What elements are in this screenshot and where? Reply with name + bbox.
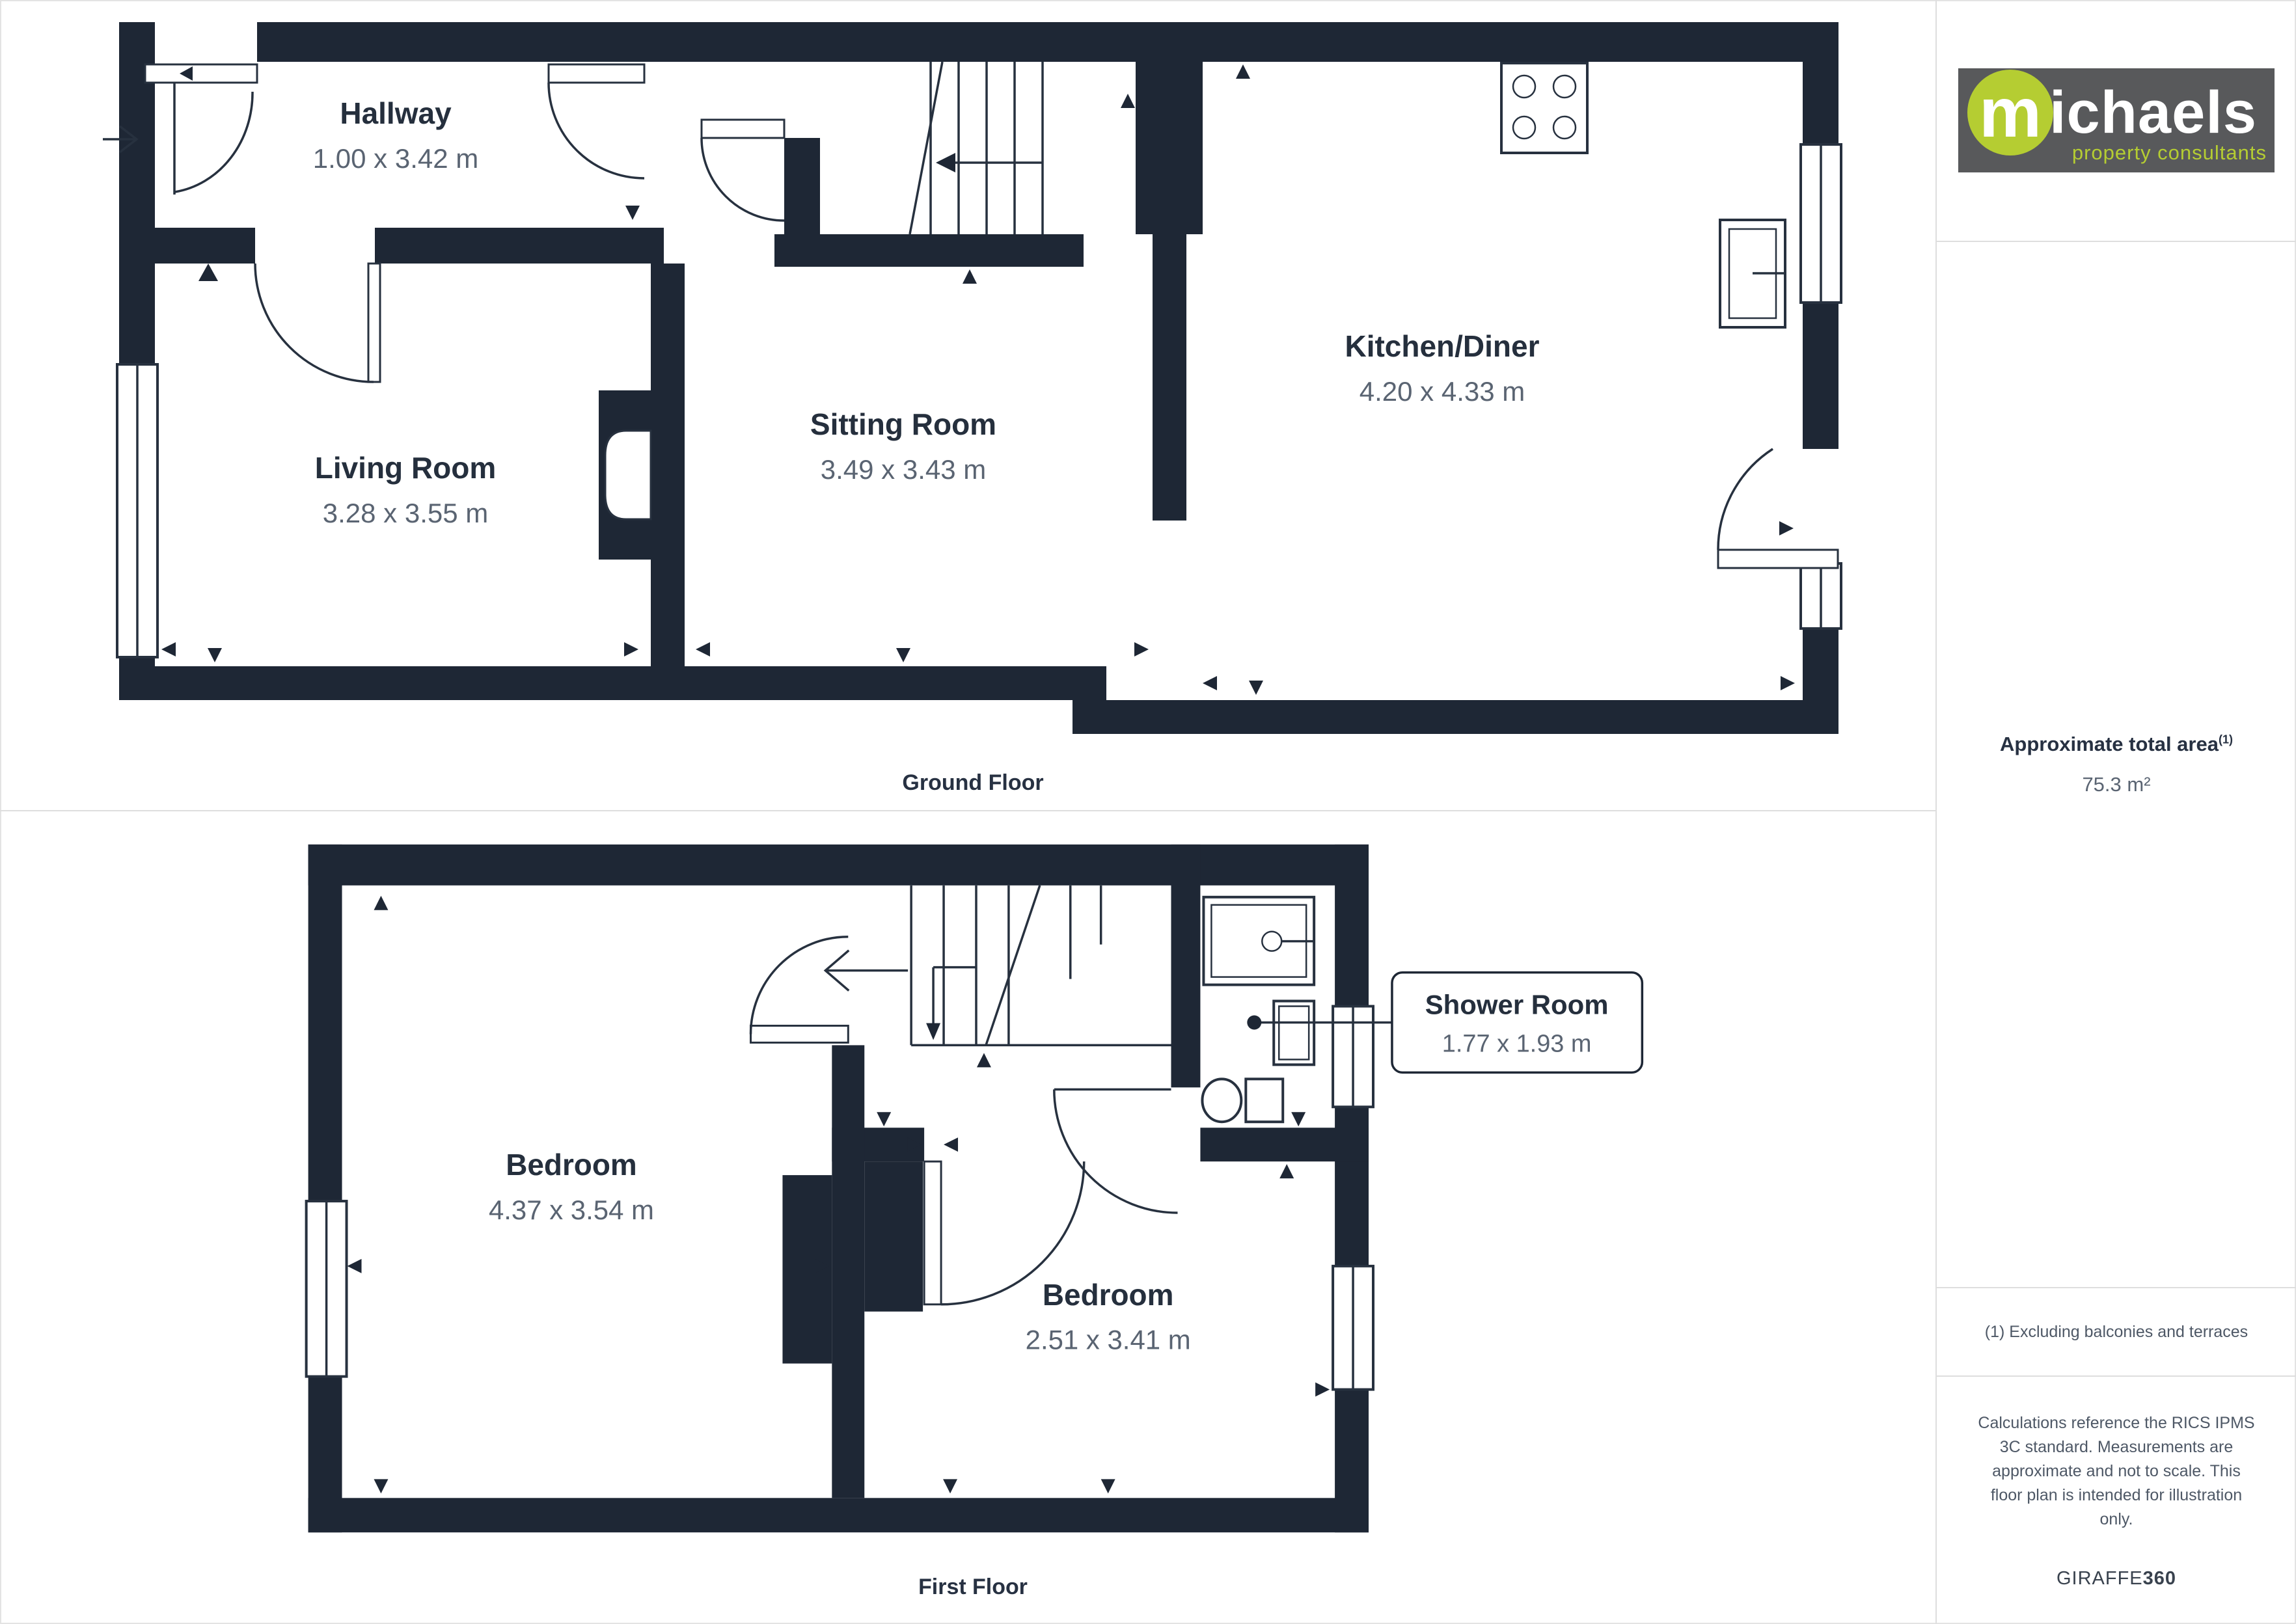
stove-icon (1501, 63, 1587, 153)
michaels-logo: m ichaels property consultants (1958, 68, 2275, 172)
room-label-sitting-room: Sitting Room (810, 407, 996, 441)
sitting-room-door (702, 120, 784, 221)
room-label-bedroom1: Bedroom (506, 1148, 637, 1182)
room-dims-sitting-room: 3.49 x 3.43 m (821, 454, 986, 485)
room-label-bedroom2: Bedroom (1043, 1278, 1174, 1312)
room-dims-hallway: 1.00 x 3.42 m (313, 143, 478, 174)
logo-tagline: property consultants (2072, 141, 2267, 165)
room-dims-bedroom2: 2.51 x 3.41 m (1026, 1325, 1191, 1355)
room-label-shower-room: Shower Room (1425, 990, 1609, 1020)
ground-floor-label: Ground Floor (902, 770, 1043, 795)
shower-room-door (1054, 1089, 1178, 1213)
total-area-footnote-ref: (1) (2219, 733, 2233, 746)
total-area-section: Approximate total area(1) 75.3 m² (1937, 241, 2296, 1287)
bedroom1-door (751, 937, 909, 1043)
giraffe-text: GIRAFFE (2057, 1568, 2143, 1589)
first-floor-stairs (911, 886, 1171, 1046)
disclaimer-text: Calculations reference the RICS IPMS 3C … (1976, 1411, 2257, 1532)
living-room-door (255, 264, 380, 382)
room-dims-living-room: 3.28 x 3.55 m (323, 498, 488, 528)
logo-m-circle-icon: m (1967, 70, 2053, 156)
shower-tray-icon (1203, 897, 1314, 985)
first-floor-plan: Shower Room 1.77 x 1.93 m Bedroom 4.37 x… (0, 811, 1935, 1624)
first-floor-label: First Floor (918, 1575, 1028, 1599)
room-dims-bedroom1: 4.37 x 3.54 m (489, 1195, 654, 1225)
info-sidebar: m ichaels property consultants Approxima… (1935, 0, 2296, 1624)
total-area-title: Approximate total area(1) (2000, 733, 2233, 756)
total-area-label: Approximate total area (2000, 733, 2219, 755)
hallway-door (549, 64, 644, 178)
room-label-kitchen-diner: Kitchen/Diner (1345, 329, 1539, 363)
floorplan-page: Hallway 1.00 x 3.42 m Living Room 3.28 x… (0, 0, 2296, 1624)
room-label-living-room: Living Room (315, 451, 497, 485)
footnote-text: (1) Excluding balconies and terraces (1985, 1323, 2248, 1342)
ground-floor-windows (117, 144, 1841, 657)
logo-wordmark: ichaels (2049, 79, 2257, 147)
total-area-value: 75.3 m² (2082, 773, 2150, 796)
ground-floor-stairs (910, 62, 1043, 234)
giraffe360-logo: GIRAFFE360 (2057, 1568, 2176, 1590)
logo-section: m ichaels property consultants (1937, 0, 2296, 241)
front-door (145, 64, 257, 195)
first-floor-section: Shower Room 1.77 x 1.93 m Bedroom 4.37 x… (0, 810, 1935, 1624)
ground-floor-section: Hallway 1.00 x 3.42 m Living Room 3.28 x… (0, 0, 1935, 810)
toilet-icon (1202, 1079, 1283, 1122)
ground-floor-plan: Hallway 1.00 x 3.42 m Living Room 3.28 x… (0, 0, 1935, 810)
kitchen-sink-icon (1720, 220, 1785, 327)
giraffe-360-text: 360 (2143, 1568, 2176, 1589)
room-label-hallway: Hallway (340, 96, 452, 130)
fireplace-alcove (605, 431, 651, 519)
back-door (1718, 449, 1838, 568)
bathroom-sink-icon (1274, 1001, 1314, 1065)
disclaimer-section: Calculations reference the RICS IPMS 3C … (1937, 1375, 2296, 1624)
footnote-section: (1) Excluding balconies and terraces (1937, 1287, 2296, 1375)
room-dims-shower-room: 1.77 x 1.93 m (1442, 1030, 1592, 1057)
room-dims-kitchen-diner: 4.20 x 4.33 m (1360, 376, 1525, 407)
